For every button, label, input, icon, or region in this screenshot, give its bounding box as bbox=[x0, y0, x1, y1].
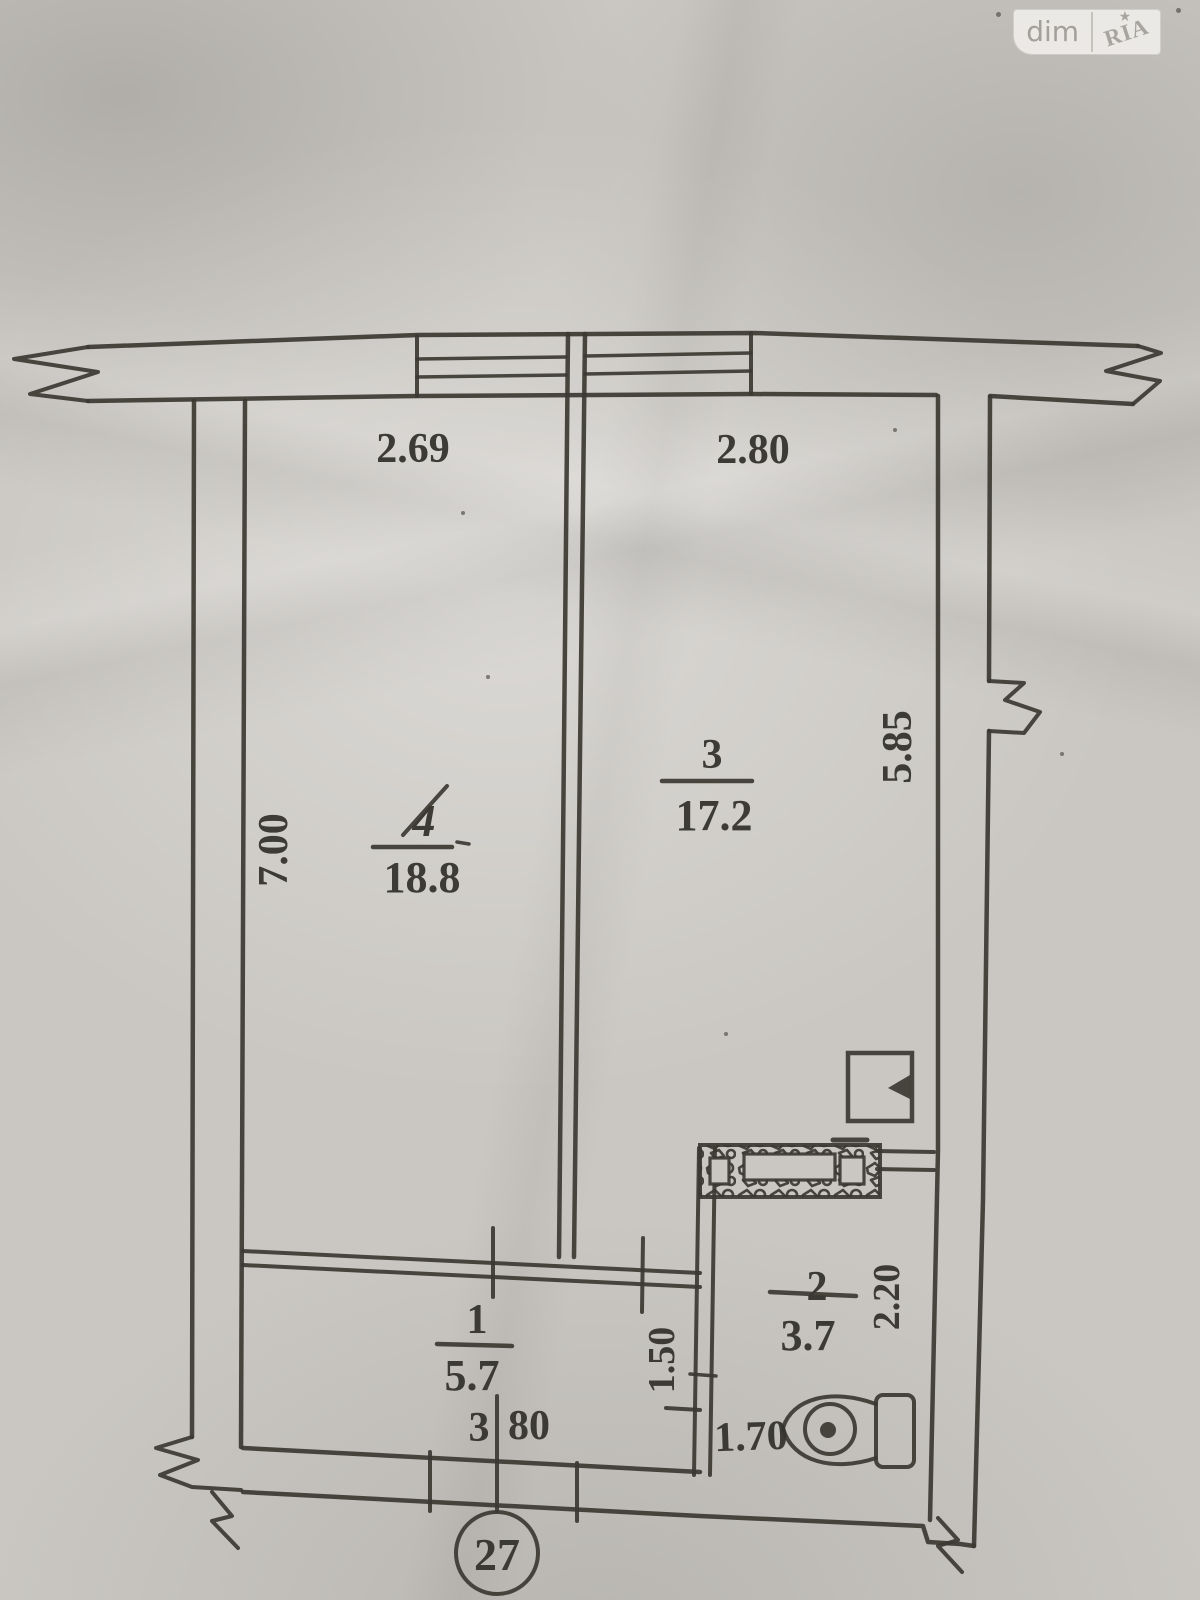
watermark-ria-block: ★ RIA bbox=[1093, 10, 1160, 54]
right-wall-break-icon bbox=[989, 681, 1040, 733]
paper-speck bbox=[1176, 8, 1181, 13]
bath-top-wall-ext-b bbox=[877, 1169, 934, 1170]
dim-label-hall-depth: 1.50 bbox=[641, 1327, 683, 1394]
floor-plan-drawing: 2.69 2.80 7.00 5.85 3 17.2 4 18.8 1 5.7 … bbox=[0, 0, 1200, 1600]
bottom-wall-bottom-line bbox=[243, 1492, 974, 1546]
dim-tick-hall-right bbox=[642, 1238, 643, 1312]
vent-arrow-icon bbox=[888, 1075, 910, 1099]
dim-label-380-frac: 80 bbox=[508, 1403, 550, 1449]
room2-area: 3.7 bbox=[781, 1311, 836, 1360]
dim-label-left-side: 7.00 bbox=[251, 813, 297, 887]
paper-speck bbox=[1060, 752, 1064, 756]
paper-speck bbox=[461, 511, 465, 515]
paper-speck bbox=[486, 675, 490, 679]
watermark-dim-label: dim bbox=[1014, 10, 1091, 54]
dim-tick-bath-bottom bbox=[666, 1408, 700, 1410]
right-wall-outer-upper bbox=[989, 397, 990, 681]
wall-break-down-left-icon bbox=[212, 1492, 238, 1548]
room1-fraction-bar bbox=[437, 1344, 512, 1346]
photographed-floor-plan-page: 2.69 2.80 7.00 5.85 3 17.2 4 18.8 1 5.7 … bbox=[0, 0, 1200, 1600]
bath-door-jamb bbox=[690, 1374, 716, 1376]
room1-area: 5.7 bbox=[445, 1351, 500, 1400]
room4-area: 18.8 bbox=[384, 853, 461, 902]
dim-label-bath-width: 1.70 bbox=[713, 1413, 788, 1462]
dim-label-top-right: 2.80 bbox=[716, 427, 790, 473]
room2-number: 2 bbox=[807, 1264, 828, 1310]
room3-area: 17.2 bbox=[676, 791, 753, 840]
dim-label-top-left: 2.69 bbox=[376, 426, 450, 472]
watermark-ria-label: RIA bbox=[1101, 14, 1151, 50]
partition-line-b bbox=[574, 334, 585, 1257]
right-wall-inner-line bbox=[930, 396, 938, 1520]
wall-break-bottom-left-icon bbox=[156, 1437, 241, 1490]
top-wall-outer-line bbox=[88, 333, 1138, 347]
wall-break-left-icon bbox=[14, 347, 98, 401]
flat-number: 27 bbox=[474, 1529, 520, 1580]
paper-speck bbox=[996, 12, 1001, 17]
paper-speck bbox=[724, 1032, 728, 1036]
dim-label-bath-depth: 2.20 bbox=[866, 1264, 908, 1331]
partition-line-a bbox=[559, 334, 568, 1257]
top-wall-inner-line bbox=[88, 394, 936, 401]
paper-speck bbox=[893, 428, 897, 432]
bottom-wall-top-line bbox=[243, 1448, 700, 1472]
wall-break-right-icon bbox=[1106, 346, 1161, 404]
room1-number: 1 bbox=[467, 1297, 488, 1343]
dim-ria-watermark: dim ★ RIA bbox=[1014, 10, 1160, 54]
dim-label-right-side: 5.85 bbox=[875, 710, 921, 784]
bath-lintel-block-left bbox=[710, 1158, 729, 1184]
bath-lintel-block-center bbox=[744, 1154, 835, 1180]
window1-line-b bbox=[417, 375, 566, 377]
toilet-tank-symbol bbox=[876, 1395, 914, 1467]
window2-line-a bbox=[585, 353, 751, 356]
left-wall-outer-line bbox=[192, 401, 194, 1437]
left-wall-inner-line bbox=[241, 401, 245, 1447]
dim-label-380-whole: 3 bbox=[469, 1405, 490, 1451]
toilet-drain-dot bbox=[820, 1422, 836, 1438]
window2-line-b bbox=[585, 371, 751, 374]
window1-line-a bbox=[417, 357, 566, 359]
right-wall-outer-lower bbox=[974, 731, 989, 1546]
bath-top-wall-ext-a bbox=[877, 1151, 934, 1152]
bath-lintel-block-right bbox=[840, 1157, 864, 1184]
room4-bar-dash bbox=[457, 842, 469, 844]
room3-number: 3 bbox=[702, 732, 723, 778]
top-wall-inner-line-right bbox=[990, 396, 1133, 404]
room2-fraction-bar bbox=[770, 1292, 856, 1296]
